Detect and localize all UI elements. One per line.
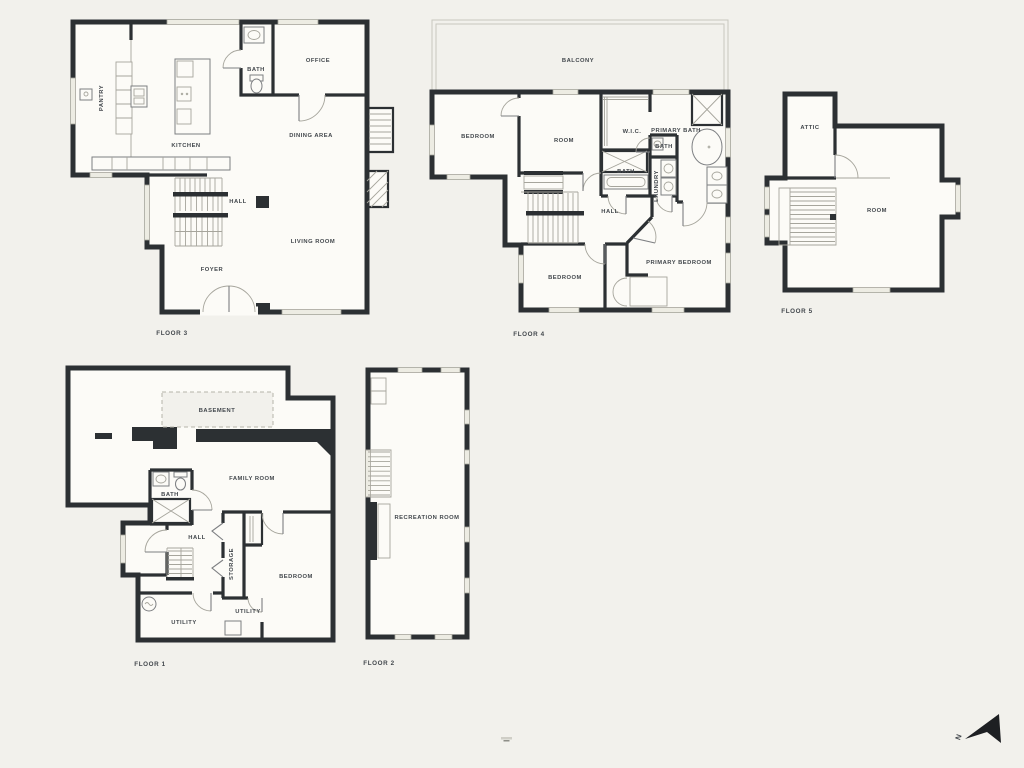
window — [726, 253, 731, 283]
interior-wall-pier — [368, 502, 377, 560]
room-label-family-room: FAMILY ROOM — [229, 476, 275, 482]
floor-1-plan: BASEMENT FAMILY ROOM BATH HALL STORAGE B… — [68, 368, 333, 668]
floor-2-plan: RECREATION ROOM FLOOR 2 — [363, 368, 469, 668]
room-label-living-room: LIVING ROOM — [291, 239, 335, 245]
room-label-utility-right: UTILITY — [235, 609, 260, 615]
washer-dryer — [661, 160, 676, 195]
north-arrow-icon — [965, 714, 1001, 743]
utility-equipment — [225, 621, 241, 635]
appliance — [80, 89, 92, 100]
north-label: N — [953, 733, 963, 742]
room-label-bedroom: BEDROOM — [279, 574, 313, 580]
room-label-bath-toilet: BATH — [655, 144, 673, 150]
window — [395, 635, 411, 640]
room-label-utility-left: UTILITY — [171, 620, 196, 626]
window — [519, 255, 524, 283]
toilet-tank — [174, 472, 187, 477]
kitchen-island — [175, 59, 210, 134]
window — [441, 368, 460, 373]
room-label-attic: ATTIC — [800, 125, 819, 131]
room-label-hall: HALL — [188, 535, 205, 541]
room-label-room: ROOM — [867, 208, 887, 214]
room-label-bedroom-left: BEDROOM — [461, 134, 495, 140]
shower-stall — [692, 94, 722, 125]
balcony-outline — [432, 20, 728, 90]
room-label-pantry: PANTRY — [99, 85, 105, 111]
window — [549, 308, 579, 313]
room-label-primary-bedroom: PRIMARY BEDROOM — [646, 260, 712, 266]
window — [726, 128, 731, 157]
closet-sliding — [524, 171, 563, 194]
bathtub-small — [604, 175, 648, 189]
floor-1-label: FLOOR 1 — [134, 661, 166, 668]
room-label-hall: HALL — [601, 209, 618, 215]
wall-pier — [256, 303, 270, 314]
scale-mark — [501, 737, 512, 742]
window — [553, 90, 578, 95]
floor-2-label: FLOOR 2 — [363, 660, 395, 667]
sink-counter — [244, 27, 264, 43]
room-label-bath: BATH — [247, 67, 265, 73]
window — [765, 215, 770, 237]
kitchen-counter — [92, 157, 230, 170]
room-label-bath: BATH — [161, 492, 179, 498]
window — [90, 173, 112, 178]
room-label-primary-bath: PRIMARY BATH — [651, 128, 701, 134]
window — [465, 578, 470, 593]
floorplan-canvas: PANTRY KITCHEN BATH OFFICE DINING AREA H… — [0, 0, 1024, 768]
room-label-storage: STORAGE — [229, 548, 235, 580]
room-label-bedroom-lower: BEDROOM — [548, 275, 582, 281]
window — [652, 308, 684, 313]
window — [145, 185, 150, 240]
room-label-basement: BASEMENT — [199, 408, 236, 414]
room-label-kitchen: KITCHEN — [171, 143, 200, 149]
sink-counter — [153, 472, 169, 486]
window — [726, 217, 731, 243]
oven-stack — [131, 86, 147, 107]
room-label-laundry: LAUNDRY — [654, 170, 660, 202]
window — [853, 288, 890, 293]
window — [653, 90, 689, 95]
room-label-balcony: BALCONY — [562, 58, 594, 64]
chimney — [256, 196, 269, 208]
window — [956, 185, 961, 212]
floor-4-plan: BALCONY BEDROOM ROOM W.I.C. PRIMARY BATH… — [430, 20, 731, 338]
floor-3-plan: PANTRY KITCHEN BATH OFFICE DINING AREA H… — [71, 20, 394, 338]
room-label-office: OFFICE — [306, 58, 330, 64]
window — [465, 410, 470, 424]
vanity-sinks — [707, 167, 727, 203]
toilet-bowl — [176, 478, 186, 490]
window — [167, 20, 239, 25]
window — [398, 368, 422, 373]
window — [282, 310, 341, 315]
window — [465, 450, 470, 464]
floor-5-plan: ATTIC ROOM FLOOR 5 — [765, 94, 961, 315]
floor-2-footprint — [368, 370, 467, 637]
room-label-dining-area: DINING AREA — [289, 133, 333, 139]
floor-4-label: FLOOR 4 — [513, 331, 545, 338]
window — [278, 20, 318, 25]
window — [430, 125, 435, 155]
floor-3-label: FLOOR 3 — [156, 330, 188, 337]
room-label-room: ROOM — [554, 138, 574, 144]
floor-5-label: FLOOR 5 — [781, 308, 813, 315]
window — [465, 527, 470, 542]
window — [435, 635, 452, 640]
window — [121, 535, 126, 563]
room-label-foyer: FOYER — [201, 267, 224, 273]
laundry-tub — [142, 597, 156, 611]
shower-stall — [152, 499, 190, 523]
window — [765, 187, 770, 209]
room-label-hall: HALL — [229, 199, 246, 205]
window — [447, 175, 470, 180]
bathtub-oval — [692, 129, 722, 165]
compass: N — [953, 714, 1001, 743]
room-label-recreation-room: RECREATION ROOM — [394, 515, 459, 521]
window — [71, 78, 76, 124]
room-label-wic: W.I.C. — [623, 129, 642, 135]
floorplan-document: PANTRY KITCHEN BATH OFFICE DINING AREA H… — [0, 0, 1024, 768]
room-label-bath-tub: BATH — [617, 169, 635, 175]
toilet-bowl — [251, 79, 262, 93]
fireplace — [95, 433, 112, 439]
